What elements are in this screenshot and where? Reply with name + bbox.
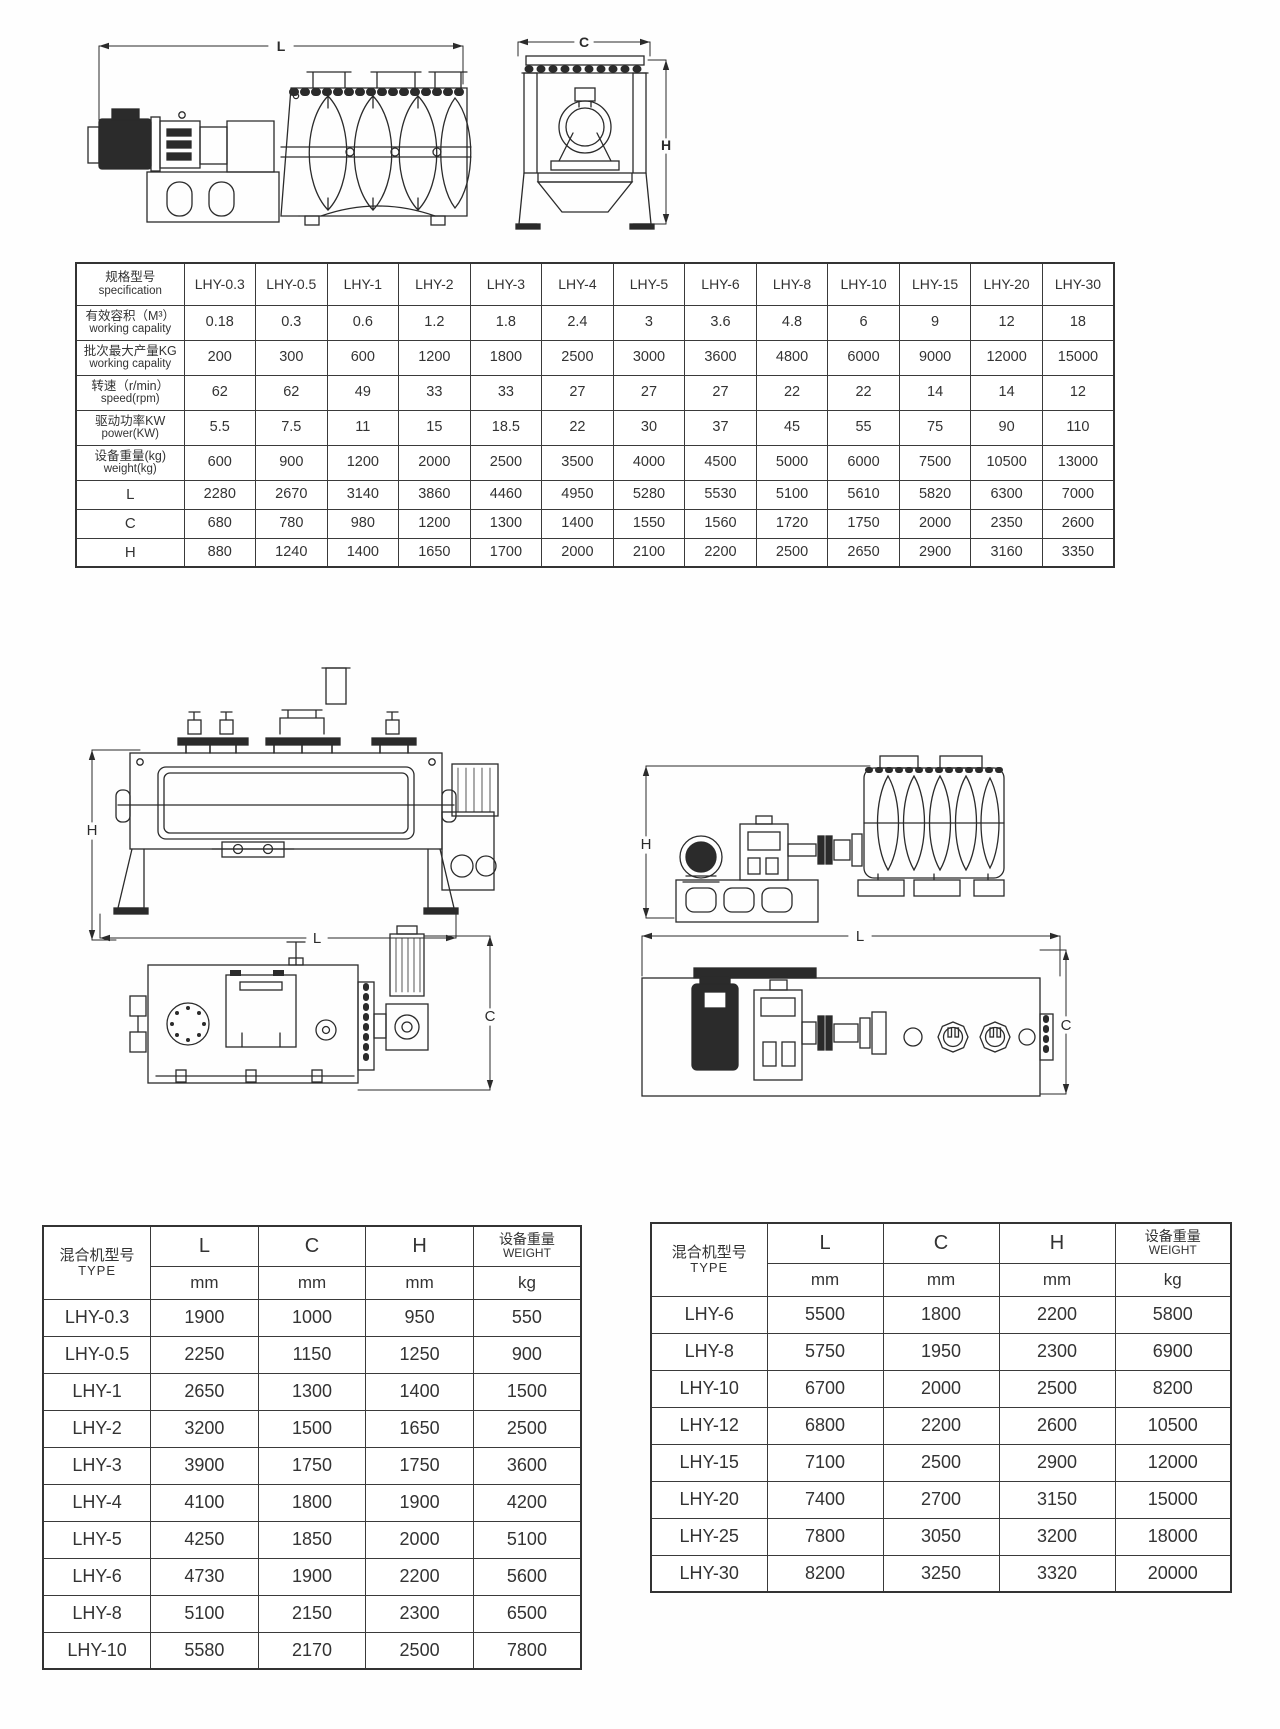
spec-value: 2000 xyxy=(399,445,471,480)
dim-unit: mm xyxy=(999,1263,1115,1296)
spec-value: 600 xyxy=(327,340,399,375)
dim-value: 1800 xyxy=(258,1484,366,1521)
dim-model: LHY-3 xyxy=(43,1447,151,1484)
spec-row-label: C xyxy=(76,509,184,538)
spec-value: 7.5 xyxy=(256,410,328,445)
spec-value: 14 xyxy=(899,375,971,410)
bearing-housing xyxy=(551,88,619,170)
spec-sheet-page: L xyxy=(0,0,1280,1729)
dim-col-H: H xyxy=(999,1223,1115,1263)
spec-value: 4000 xyxy=(613,445,685,480)
spec-model-header: LHY-10 xyxy=(828,263,900,305)
spec-model-header: LHY-1 xyxy=(327,263,399,305)
spec-value: 2280 xyxy=(184,480,256,509)
spec-value: 4500 xyxy=(685,445,757,480)
dim-value: 2200 xyxy=(366,1558,474,1595)
dim-value: 1800 xyxy=(883,1296,999,1333)
dim-value: 12000 xyxy=(1115,1444,1231,1481)
spec-value: 3860 xyxy=(399,480,471,509)
dim-value: 6500 xyxy=(473,1595,581,1632)
dim-model: LHY-6 xyxy=(43,1558,151,1595)
dim-value: 1300 xyxy=(258,1373,366,1410)
spec-value: 3500 xyxy=(542,445,614,480)
spec-row-label: 转速（r/min）speed(rpm) xyxy=(76,375,184,410)
spec-value: 22 xyxy=(828,375,900,410)
dim-unit: mm xyxy=(767,1263,883,1296)
spec-value: 27 xyxy=(613,375,685,410)
spec-value: 90 xyxy=(971,410,1043,445)
spec-value: 2000 xyxy=(542,538,614,567)
mixer-body xyxy=(116,753,456,849)
spec-value: 12 xyxy=(1042,375,1114,410)
spec-value: 2500 xyxy=(756,538,828,567)
spec-value: 3.6 xyxy=(685,305,757,340)
spec-value: 6000 xyxy=(828,340,900,375)
dim-value: 2250 xyxy=(151,1336,259,1373)
drawing-plow-mixer-side-view: L xyxy=(85,26,475,231)
spec-value: 1550 xyxy=(613,509,685,538)
dim-value: 1950 xyxy=(883,1333,999,1370)
dim-model: LHY-25 xyxy=(651,1518,767,1555)
dim-value: 5500 xyxy=(767,1296,883,1333)
top-fittings xyxy=(178,668,416,753)
spec-value: 1400 xyxy=(327,538,399,567)
dim-value: 2300 xyxy=(999,1333,1115,1370)
vertical-motor-drive xyxy=(358,926,428,1070)
dim-value: 8200 xyxy=(1115,1370,1231,1407)
spec-value: 55 xyxy=(828,410,900,445)
end-bearing xyxy=(1040,1014,1053,1060)
spec-value: 2650 xyxy=(828,538,900,567)
spec-value: 5530 xyxy=(685,480,757,509)
dim-value: 1150 xyxy=(258,1336,366,1373)
spec-value: 14 xyxy=(971,375,1043,410)
dim-label-L: L xyxy=(856,928,864,945)
spec-value: 2600 xyxy=(1042,509,1114,538)
dim-model: LHY-10 xyxy=(43,1632,151,1669)
dim-value: 3050 xyxy=(883,1518,999,1555)
dim-value: 10500 xyxy=(1115,1407,1231,1444)
plow-blades xyxy=(309,96,471,210)
spec-value: 1200 xyxy=(399,509,471,538)
spec-value: 880 xyxy=(184,538,256,567)
dim-col-H: H xyxy=(366,1226,474,1266)
spec-value: 27 xyxy=(542,375,614,410)
dim-model: LHY-20 xyxy=(651,1481,767,1518)
dim-value: 5100 xyxy=(151,1595,259,1632)
drawing-ribbon-mixer-front-view: H L xyxy=(70,642,510,952)
spec-value: 9 xyxy=(899,305,971,340)
spec-value: 1400 xyxy=(542,509,614,538)
dim-unit: mm xyxy=(366,1266,474,1299)
dim-value: 20000 xyxy=(1115,1555,1231,1592)
spec-row-label: H xyxy=(76,538,184,567)
dim-model: LHY-1 xyxy=(43,1373,151,1410)
spec-value: 1560 xyxy=(685,509,757,538)
spec-value: 7000 xyxy=(1042,480,1114,509)
dim-col-weight: 设备重量WEIGHT xyxy=(1115,1223,1231,1263)
dim-value: 2600 xyxy=(999,1407,1115,1444)
dim-value: 6800 xyxy=(767,1407,883,1444)
dim-type-header: 混合机型号TYPE xyxy=(651,1223,767,1296)
dim-value: 2300 xyxy=(366,1595,474,1632)
spec-value: 2900 xyxy=(899,538,971,567)
spec-value: 900 xyxy=(256,445,328,480)
dim-model: LHY-8 xyxy=(43,1595,151,1632)
dim-unit: mm xyxy=(258,1266,366,1299)
dim-value: 550 xyxy=(473,1299,581,1336)
machine-body xyxy=(522,56,648,173)
dim-label-H: H xyxy=(87,822,98,839)
mixer-body xyxy=(130,942,358,1083)
dim-value: 3250 xyxy=(883,1555,999,1592)
spec-value: 12000 xyxy=(971,340,1043,375)
dim-model: LHY-0.5 xyxy=(43,1336,151,1373)
dim-value: 950 xyxy=(366,1299,474,1336)
spec-value: 200 xyxy=(184,340,256,375)
spec-value: 4460 xyxy=(470,480,542,509)
spec-value: 11 xyxy=(327,410,399,445)
spec-model-header: LHY-20 xyxy=(971,263,1043,305)
dim-value: 1000 xyxy=(258,1299,366,1336)
spec-table: 规格型号specificationLHY-0.3LHY-0.5LHY-1LHY-… xyxy=(75,262,1115,568)
spec-value: 780 xyxy=(256,509,328,538)
dim-value: 2500 xyxy=(883,1444,999,1481)
spec-model-header: LHY-0.3 xyxy=(184,263,256,305)
spec-value: 13000 xyxy=(1042,445,1114,480)
spec-value: 2670 xyxy=(256,480,328,509)
spec-model-header: LHY-15 xyxy=(899,263,971,305)
dim-value: 1750 xyxy=(366,1447,474,1484)
dim-label-C: C xyxy=(485,1008,496,1025)
drawing-mixer-top-view-left: C xyxy=(118,920,510,1112)
spec-value: 22 xyxy=(756,375,828,410)
dim-type-header: 混合机型号TYPE xyxy=(43,1226,151,1299)
spec-value: 45 xyxy=(756,410,828,445)
spec-model-header: LHY-8 xyxy=(756,263,828,305)
spec-value: 5610 xyxy=(828,480,900,509)
spec-value: 1800 xyxy=(470,340,542,375)
gearbox xyxy=(740,816,788,880)
spec-value: 12 xyxy=(971,305,1043,340)
dim-value: 3320 xyxy=(999,1555,1115,1592)
gearbox xyxy=(754,980,802,1080)
dim-label-L: L xyxy=(277,38,286,54)
motor xyxy=(692,976,738,1070)
spec-value: 0.3 xyxy=(256,305,328,340)
dim-value: 7100 xyxy=(767,1444,883,1481)
dim-unit: mm xyxy=(151,1266,259,1299)
shaft-coupling xyxy=(788,834,862,866)
dim-value: 2200 xyxy=(999,1296,1115,1333)
dim-unit: mm xyxy=(883,1263,999,1296)
dim-value: 18000 xyxy=(1115,1518,1231,1555)
spec-value: 49 xyxy=(327,375,399,410)
dim-value: 3900 xyxy=(151,1447,259,1484)
spec-value: 5280 xyxy=(613,480,685,509)
spec-value: 2100 xyxy=(613,538,685,567)
spec-value: 4950 xyxy=(542,480,614,509)
spec-value: 5100 xyxy=(756,480,828,509)
spec-model-header: LHY-6 xyxy=(685,263,757,305)
spec-value: 27 xyxy=(685,375,757,410)
dimension-H-line xyxy=(646,766,870,918)
spec-value: 5820 xyxy=(899,480,971,509)
spec-value: 110 xyxy=(1042,410,1114,445)
spec-value: 6300 xyxy=(971,480,1043,509)
spec-value: 2500 xyxy=(542,340,614,375)
spec-value: 7500 xyxy=(899,445,971,480)
dim-col-C: C xyxy=(883,1223,999,1263)
spec-value: 2000 xyxy=(899,509,971,538)
dim-value: 1900 xyxy=(366,1484,474,1521)
dim-value: 1750 xyxy=(258,1447,366,1484)
spec-value: 0.18 xyxy=(184,305,256,340)
dim-label-H: H xyxy=(641,836,652,853)
spec-value: 33 xyxy=(470,375,542,410)
spec-value: 75 xyxy=(899,410,971,445)
base xyxy=(676,874,1004,922)
dim-label-H: H xyxy=(661,137,671,153)
spec-row-label: 驱动功率KWpower(KW) xyxy=(76,410,184,445)
spec-value: 0.6 xyxy=(327,305,399,340)
dim-value: 5800 xyxy=(1115,1296,1231,1333)
spec-value: 3 xyxy=(613,305,685,340)
dim-value: 1500 xyxy=(473,1373,581,1410)
spec-value: 980 xyxy=(327,509,399,538)
spec-value: 6 xyxy=(828,305,900,340)
spec-value: 18.5 xyxy=(470,410,542,445)
spec-model-header: LHY-2 xyxy=(399,263,471,305)
spec-value: 33 xyxy=(399,375,471,410)
spec-header-label: 规格型号specification xyxy=(76,263,184,305)
spec-value: 1.2 xyxy=(399,305,471,340)
drawing-plow-mixer-end-view: C H xyxy=(498,26,683,231)
dim-value: 4200 xyxy=(473,1484,581,1521)
spec-value: 1720 xyxy=(756,509,828,538)
dim-value: 1250 xyxy=(366,1336,474,1373)
dim-value: 1500 xyxy=(258,1410,366,1447)
spec-value: 2200 xyxy=(685,538,757,567)
bottom-discharge xyxy=(212,842,294,857)
spec-value: 1750 xyxy=(828,509,900,538)
dim-value: 3200 xyxy=(999,1518,1115,1555)
spec-value: 18 xyxy=(1042,305,1114,340)
drawing-ribbon-mixer-side-view: H xyxy=(558,640,1010,932)
spec-row-label: L xyxy=(76,480,184,509)
dim-value: 2500 xyxy=(473,1410,581,1447)
spec-model-header: LHY-4 xyxy=(542,263,614,305)
dim-value: 3150 xyxy=(999,1481,1115,1518)
dim-value: 1650 xyxy=(366,1410,474,1447)
flange-bolts xyxy=(170,970,284,1042)
motor xyxy=(680,836,722,882)
spec-value: 680 xyxy=(184,509,256,538)
spec-value: 3160 xyxy=(971,538,1043,567)
dim-value: 2650 xyxy=(151,1373,259,1410)
spec-value: 300 xyxy=(256,340,328,375)
dim-model: LHY-30 xyxy=(651,1555,767,1592)
spec-value: 62 xyxy=(256,375,328,410)
dim-value: 3600 xyxy=(473,1447,581,1484)
dim-table-right: 混合机型号TYPELCH设备重量WEIGHTmmmmmmkgLHY-655001… xyxy=(650,1222,1232,1593)
spec-model-header: LHY-30 xyxy=(1042,263,1114,305)
spec-row-label: 批次最大产量KGworking capality xyxy=(76,340,184,375)
dim-value: 7400 xyxy=(767,1481,883,1518)
dim-value: 6700 xyxy=(767,1370,883,1407)
spec-model-header: LHY-0.5 xyxy=(256,263,328,305)
spec-value: 3140 xyxy=(327,480,399,509)
dim-value: 4730 xyxy=(151,1558,259,1595)
base-legs xyxy=(114,849,458,914)
spec-model-header: LHY-5 xyxy=(613,263,685,305)
dim-value: 5750 xyxy=(767,1333,883,1370)
spec-value: 15 xyxy=(399,410,471,445)
spec-value: 37 xyxy=(685,410,757,445)
dim-value: 7800 xyxy=(767,1518,883,1555)
dim-value: 2700 xyxy=(883,1481,999,1518)
dim-value: 4250 xyxy=(151,1521,259,1558)
shaft-ports xyxy=(904,1022,1035,1052)
spec-value: 1.8 xyxy=(470,305,542,340)
spec-value: 3350 xyxy=(1042,538,1114,567)
dim-value: 2170 xyxy=(258,1632,366,1669)
dim-col-weight: 设备重量WEIGHT xyxy=(473,1226,581,1266)
drive-base xyxy=(147,172,279,222)
dim-label-C: C xyxy=(579,34,589,50)
spec-value: 62 xyxy=(184,375,256,410)
spec-value: 1700 xyxy=(470,538,542,567)
dim-value: 2500 xyxy=(366,1632,474,1669)
motor xyxy=(88,109,151,169)
spec-value: 5.5 xyxy=(184,410,256,445)
spec-value: 5000 xyxy=(756,445,828,480)
gearbox xyxy=(151,112,274,172)
spec-value: 4.8 xyxy=(756,305,828,340)
dim-value: 1850 xyxy=(258,1521,366,1558)
spec-value: 3000 xyxy=(613,340,685,375)
spec-value: 600 xyxy=(184,445,256,480)
dim-value: 5100 xyxy=(473,1521,581,1558)
dim-model: LHY-4 xyxy=(43,1484,151,1521)
spec-value: 2350 xyxy=(971,509,1043,538)
dim-value: 8200 xyxy=(767,1555,883,1592)
dim-label-C: C xyxy=(1061,1017,1072,1034)
dim-value: 1900 xyxy=(151,1299,259,1336)
dim-value: 4100 xyxy=(151,1484,259,1521)
dim-model: LHY-8 xyxy=(651,1333,767,1370)
spec-value: 15000 xyxy=(1042,340,1114,375)
spec-value: 10500 xyxy=(971,445,1043,480)
dim-value: 1900 xyxy=(258,1558,366,1595)
dim-value: 7800 xyxy=(473,1632,581,1669)
dim-col-L: L xyxy=(151,1226,259,1266)
side-drive-unit xyxy=(442,764,498,890)
dim-model: LHY-12 xyxy=(651,1407,767,1444)
dim-model: LHY-0.3 xyxy=(43,1299,151,1336)
dim-value: 2500 xyxy=(999,1370,1115,1407)
spec-value: 1650 xyxy=(399,538,471,567)
dim-value: 2000 xyxy=(366,1521,474,1558)
spec-value: 2500 xyxy=(470,445,542,480)
spec-value: 3600 xyxy=(685,340,757,375)
spec-value: 30 xyxy=(613,410,685,445)
dim-unit: kg xyxy=(473,1266,581,1299)
spec-value: 1300 xyxy=(470,509,542,538)
dim-value: 900 xyxy=(473,1336,581,1373)
spec-value: 1200 xyxy=(327,445,399,480)
dim-model: LHY-10 xyxy=(651,1370,767,1407)
dim-value: 2900 xyxy=(999,1444,1115,1481)
drawing-mixer-top-view-right: L C xyxy=(608,920,1086,1115)
spec-value: 22 xyxy=(542,410,614,445)
dim-value: 2000 xyxy=(883,1370,999,1407)
spec-value: 4800 xyxy=(756,340,828,375)
dim-col-C: C xyxy=(258,1226,366,1266)
drum xyxy=(864,756,1004,878)
shaft-coupling xyxy=(802,1012,886,1054)
dim-value: 1400 xyxy=(366,1373,474,1410)
dim-value: 15000 xyxy=(1115,1481,1231,1518)
dim-model: LHY-6 xyxy=(651,1296,767,1333)
dim-value: 2150 xyxy=(258,1595,366,1632)
dim-table-left: 混合机型号TYPELCH设备重量WEIGHTmmmmmmkgLHY-0.3190… xyxy=(42,1225,582,1670)
dim-col-L: L xyxy=(767,1223,883,1263)
dim-model: LHY-15 xyxy=(651,1444,767,1481)
spec-value: 1200 xyxy=(399,340,471,375)
spec-row-label: 有效容积（M³）working capality xyxy=(76,305,184,340)
dim-model: LHY-5 xyxy=(43,1521,151,1558)
dim-value: 6900 xyxy=(1115,1333,1231,1370)
spec-value: 2.4 xyxy=(542,305,614,340)
dim-value: 2200 xyxy=(883,1407,999,1444)
spec-row-label: 设备重量(kg)weight(kg) xyxy=(76,445,184,480)
spec-model-header: LHY-3 xyxy=(470,263,542,305)
dim-value: 5580 xyxy=(151,1632,259,1669)
dim-model: LHY-2 xyxy=(43,1410,151,1447)
hopper-legs xyxy=(516,173,654,229)
spec-value: 9000 xyxy=(899,340,971,375)
dim-value: 3200 xyxy=(151,1410,259,1447)
spec-value: 1240 xyxy=(256,538,328,567)
dim-value: 5600 xyxy=(473,1558,581,1595)
spec-value: 6000 xyxy=(828,445,900,480)
dim-unit: kg xyxy=(1115,1263,1231,1296)
